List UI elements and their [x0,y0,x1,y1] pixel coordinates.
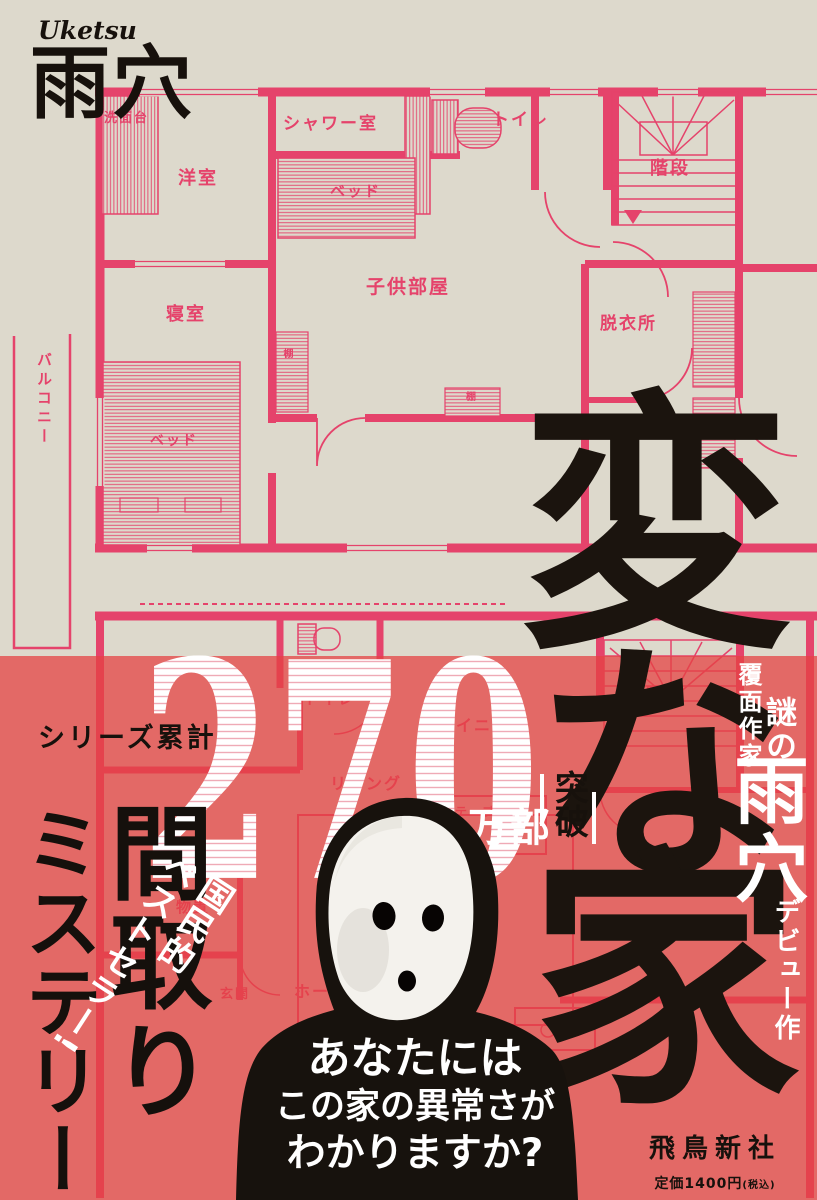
question-line: この家の異常さが [240,1090,590,1125]
author-block: Uketsu 雨穴 [30,16,194,121]
question-text: あなたにはこの家の異常さがわかりますか? [240,1038,590,1182]
divider-bar-left [540,774,544,826]
upper-stairs [612,92,738,225]
price-tax: (税込) [742,1180,775,1191]
author-name: 雨穴 [30,45,194,121]
plan-room-label: シャワー室 [283,116,378,133]
credit-author-name: 雨穴 [728,752,802,908]
price-value: 定価1400円 [654,1176,742,1192]
plan-room-label: 脱衣所 [600,316,657,333]
plan-room-label: 棚 [281,348,291,362]
plan-room-label: バルコニー [36,352,51,447]
question-segment: の [380,1087,415,1127]
plan-room-label: 子供部屋 [366,278,450,297]
publisher-name: 飛鳥新社 [640,1128,790,1165]
credit-debut-work: デビュー作 [772,898,798,1043]
question-segment: 異常 [415,1087,485,1127]
question-segment: には [437,1034,523,1084]
question-segment: この [275,1087,345,1127]
plan-room-label: 階段 [650,160,690,178]
question-segment: あなた [308,1034,437,1084]
plan-room-label: ベッド [150,434,198,448]
price-label: 定価1400円(税込) [640,1173,790,1193]
question-segment: わかり [287,1131,404,1176]
question-segment: さが [485,1087,555,1127]
plan-room-label: トイレ [492,112,549,129]
question-line: あなたには [240,1038,590,1081]
divider-bar-right [592,792,596,844]
question-segment: 家 [345,1087,380,1127]
series-total-label: シリーズ累計 [38,716,217,755]
plan-room-label: 洋室 [178,170,218,188]
question-line: わかりますか? [240,1134,590,1173]
publisher-block: 飛鳥新社 定価1400円(税込) [640,1128,790,1193]
plan-room-label: 寝室 [166,306,206,324]
book-cover: トイレ階段ダイニングリビングテーブル物置玄関ホール [0,0,817,1200]
plan-room-label: 棚 [466,393,478,403]
question-segment: ますか? [404,1131,544,1176]
sales-breakthrough: 突破 [549,770,586,838]
plan-room-label: ベッド [330,184,381,199]
